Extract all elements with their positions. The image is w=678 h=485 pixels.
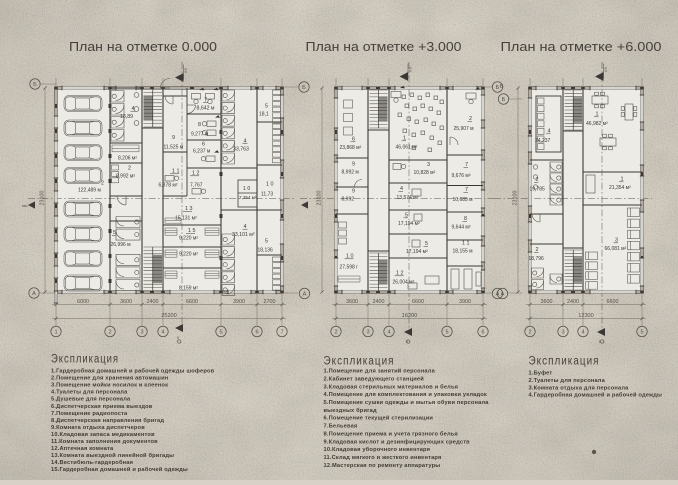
svg-text:5: 5 — [265, 104, 268, 110]
svg-text:6600: 6600 — [186, 299, 198, 305]
svg-text:1.Буфет: 1.Буфет — [529, 370, 553, 377]
svg-text:12.Мастерская по ремонту аппар: 12.Мастерская по ремонту аппаратуры — [324, 463, 441, 469]
svg-text:25200: 25200 — [161, 313, 177, 319]
svg-text:4.Гардеробная домашней и рабоч: 4.Гардеробная домашней и рабочей одежды — [529, 392, 663, 399]
svg-text:19,785: 19,785 — [530, 187, 546, 193]
svg-text:выездных бригад: выездных бригад — [324, 407, 378, 414]
svg-text:3: 3 — [561, 330, 564, 336]
svg-text:3600: 3600 — [541, 299, 553, 305]
svg-text:9.Комната отдыха диспетчеров: 9.Комната отдыха диспетчеров — [51, 425, 145, 431]
svg-text:2.Помещение для хранения автом: 2.Помещение для хранения автомашин — [51, 376, 169, 382]
svg-text:18,136: 18,136 — [258, 248, 274, 254]
svg-text:9,676 м²: 9,676 м² — [452, 173, 471, 179]
svg-text:6: 6 — [481, 330, 484, 336]
svg-text:5.Душевые для персонала: 5.Душевые для персонала — [51, 397, 131, 403]
svg-text:9,220 м²: 9,220 м² — [179, 252, 198, 258]
svg-text:вых: вых — [22, 204, 28, 208]
svg-text:8,642 м: 8,642 м — [197, 106, 215, 112]
svg-text:Экспликация: Экспликация — [51, 354, 119, 366]
svg-text:2700: 2700 — [264, 299, 276, 305]
svg-text:12300: 12300 — [578, 313, 594, 319]
svg-text:6000: 6000 — [77, 299, 89, 305]
svg-text:10.Кладовая уборочного инвента: 10.Кладовая уборочного инвентаря — [324, 446, 431, 453]
svg-text:11,525 м: 11,525 м — [164, 145, 184, 151]
svg-text:6: 6 — [202, 142, 205, 148]
svg-text:2: 2 — [528, 330, 531, 336]
svg-text:2: 2 — [108, 330, 111, 336]
svg-text:18,1: 18,1 — [259, 112, 269, 118]
svg-text:3900: 3900 — [459, 299, 471, 305]
svg-text:23100: 23100 — [513, 191, 519, 206]
svg-text:2: 2 — [334, 330, 337, 336]
svg-text:1: 1 — [54, 330, 57, 336]
svg-text:6.Помещение текущей стерилизац: 6.Помещение текущей стерилизации — [324, 415, 434, 422]
svg-text:9: 9 — [352, 189, 355, 195]
svg-text:18,796: 18,796 — [529, 256, 545, 262]
svg-text:8-8: 8-8 — [604, 67, 608, 72]
svg-text:8,992: 8,992 — [342, 197, 355, 203]
svg-text:10.Кладовая запаса медикаменто: 10.Кладовая запаса медикаментов — [51, 432, 155, 438]
svg-text:А: А — [32, 291, 36, 297]
svg-text:2400: 2400 — [567, 299, 579, 305]
svg-text:23100: 23100 — [317, 191, 323, 206]
svg-text:8.Диспетчерская направления бр: 8.Диспетчерская направления бригад — [51, 417, 164, 424]
svg-text:7.Помещение радиопоста: 7.Помещение радиопоста — [51, 411, 128, 417]
svg-text:2.Туалеты для персонала: 2.Туалеты для персонала — [529, 378, 606, 384]
svg-text:2.Кабинет заведующего станцией: 2.Кабинет заведующего станцией — [324, 375, 425, 382]
svg-text:8,206 м²: 8,206 м² — [118, 156, 137, 162]
svg-text:1 0: 1 0 — [266, 182, 274, 188]
svg-text:1 1: 1 1 — [462, 241, 470, 247]
svg-text:9,644 м²: 9,644 м² — [452, 225, 471, 231]
svg-text:План на отметке +6.000: План на отметке +6.000 — [501, 40, 662, 54]
svg-text:26,004 м²: 26,004 м² — [393, 280, 415, 286]
svg-text:Б: Б — [500, 84, 504, 90]
svg-text:4: 4 — [387, 330, 390, 336]
svg-text:План на отметке 0.000: План на отметке 0.000 — [69, 40, 217, 54]
svg-text:46,061 м²: 46,061 м² — [396, 145, 418, 151]
svg-text:7: 7 — [280, 330, 283, 336]
svg-text:12.Аптечная комната: 12.Аптечная комната — [51, 446, 114, 452]
svg-text:18,89: 18,89 — [120, 114, 133, 120]
svg-text:4: 4 — [581, 330, 584, 336]
svg-text:Экспликация: Экспликация — [529, 356, 600, 368]
svg-text:15.Гардеробная домашней и рабо: 15.Гардеробная домашней и рабочей одежды — [51, 466, 188, 473]
svg-text:8,992 м: 8,992 м — [342, 170, 360, 176]
svg-text:План на отметке +3.000: План на отметке +3.000 — [306, 40, 462, 54]
svg-text:5: 5 — [640, 330, 643, 336]
svg-text:6.Диспетчерская приема выездов: 6.Диспетчерская приема выездов — [51, 404, 153, 410]
svg-text:7,767: 7,767 — [190, 183, 203, 189]
svg-text:4.Туалеты для персонала: 4.Туалеты для персонала — [51, 390, 128, 396]
svg-text:1 0: 1 0 — [243, 186, 250, 192]
svg-text:6600: 6600 — [607, 299, 619, 305]
svg-text:27,598 г: 27,598 г — [340, 265, 359, 271]
svg-text:6,237 м: 6,237 м — [193, 149, 211, 155]
svg-text:3900: 3900 — [233, 299, 245, 305]
svg-text:9,277 м: 9,277 м — [191, 132, 209, 138]
svg-text:9,220 м²: 9,220 м² — [179, 236, 198, 242]
svg-text:3: 3 — [366, 330, 369, 336]
svg-text:8: 8 — [198, 122, 201, 128]
svg-text:26,996 м: 26,996 м — [111, 242, 132, 248]
svg-text:17,194 м²: 17,194 м² — [398, 221, 420, 227]
svg-text:18,155 м: 18,155 м — [453, 249, 474, 255]
svg-text:122,489 м: 122,489 м — [78, 188, 101, 194]
svg-text:13.Комната выездной линейной б: 13.Комната выездной линейной бригады — [51, 452, 174, 459]
svg-text:7.Бельевая: 7.Бельевая — [324, 424, 358, 430]
svg-text:1.Помещение для занятий персон: 1.Помещение для занятий персонала — [324, 368, 436, 375]
svg-text:Экспликация: Экспликация — [324, 356, 395, 368]
svg-text:2400: 2400 — [147, 299, 159, 305]
svg-text:33,101 м²: 33,101 м² — [232, 232, 255, 238]
svg-text:16200: 16200 — [402, 313, 418, 319]
svg-text:66,081 м²: 66,081 м² — [605, 246, 627, 252]
svg-text:14.Вестибюль-гардеробная: 14.Вестибюль-гардеробная — [51, 459, 133, 466]
svg-text:6: 6 — [255, 330, 258, 336]
svg-text:9: 9 — [172, 135, 175, 141]
svg-text:17,194 м²: 17,194 м² — [406, 249, 428, 255]
svg-text:33,763: 33,763 — [233, 147, 249, 153]
svg-text:21,354 м²: 21,354 м² — [609, 185, 631, 191]
svg-text:5.Помещение сушки одежды и мыт: 5.Помещение сушки одежды и мытья обуви п… — [324, 399, 490, 406]
svg-text:23,868 м²: 23,868 м² — [340, 145, 362, 151]
svg-text:10,828 м²: 10,828 м² — [414, 170, 436, 176]
svg-text:3.Комната отдыха для персонала: 3.Комната отдыха для персонала — [529, 385, 630, 391]
svg-text:Б: Б — [502, 97, 506, 103]
svg-text:3.Кладовая стерильных материал: 3.Кладовая стерильных материалов и белья — [324, 383, 459, 390]
svg-text:9.Кладовая кислот и дезинфицир: 9.Кладовая кислот и дезинфицирующих сред… — [324, 438, 471, 445]
svg-text:4.Помещение для комплектования: 4.Помещение для комплектования и упаковк… — [324, 392, 487, 398]
svg-text:А: А — [501, 292, 505, 298]
svg-text:2400: 2400 — [373, 299, 385, 305]
svg-text:10,685 м: 10,685 м — [453, 197, 474, 203]
svg-text:2: 2 — [101, 181, 104, 187]
svg-text:7,354 м²: 7,354 м² — [239, 195, 257, 200]
svg-text:3600: 3600 — [120, 299, 132, 305]
svg-text:1.Гардеробная домашней и рабоч: 1.Гардеробная домашней и рабочей одежды … — [51, 368, 215, 375]
svg-text:2: 2 — [128, 166, 131, 172]
svg-text:25,907 м: 25,907 м — [454, 126, 475, 132]
svg-text:3.Помещение мойки носилок и кл: 3.Помещение мойки носилок и клеенок — [51, 382, 168, 389]
svg-text:6600: 6600 — [412, 299, 424, 305]
svg-text:8,159 м²: 8,159 м² — [179, 286, 198, 292]
svg-text:46,982 м²: 46,982 м² — [586, 121, 608, 127]
svg-text:3: 3 — [427, 162, 430, 168]
svg-text:А: А — [303, 292, 307, 298]
svg-text:23100: 23100 — [40, 191, 46, 206]
svg-text:8,992 м²: 8,992 м² — [116, 174, 135, 180]
svg-text:Б: Б — [33, 82, 37, 88]
svg-text:24,237: 24,237 — [535, 138, 551, 144]
svg-text:5: 5 — [265, 239, 268, 245]
svg-text:9: 9 — [352, 162, 355, 168]
svg-text:4: 4 — [161, 330, 164, 336]
svg-text:11.Склад мягкого и жесткого ин: 11.Склад мягкого и жесткого инвентаря — [324, 455, 442, 461]
svg-text:6,878 м²: 6,878 м² — [159, 183, 178, 189]
svg-text:8-8: 8-8 — [408, 67, 412, 72]
svg-text:5: 5 — [445, 330, 448, 336]
svg-text:3600: 3600 — [346, 299, 358, 305]
svg-text:8-8: 8-8 — [184, 68, 188, 73]
svg-text:11,73: 11,73 — [261, 192, 273, 198]
svg-text:8.Помещение приема и учета гря: 8.Помещение приема и учета грязного бель… — [324, 430, 458, 437]
svg-text:3: 3 — [140, 330, 143, 336]
svg-text:Б: Б — [302, 85, 306, 91]
svg-text:5: 5 — [219, 330, 222, 336]
svg-text:11.Комната заполнения документ: 11.Комната заполнения документов — [51, 439, 158, 445]
